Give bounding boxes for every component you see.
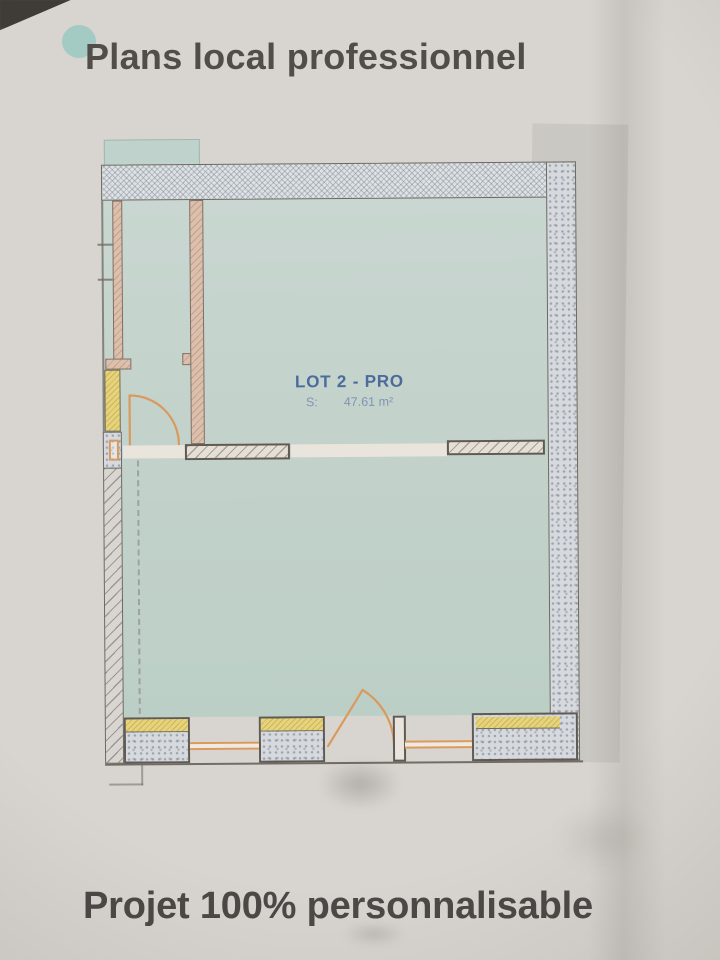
floor-plan: LOT 2 - PRO S: 47.61 m² bbox=[93, 118, 603, 802]
surface-value: 47.61 m² bbox=[344, 395, 393, 409]
bottom-window bbox=[190, 742, 260, 750]
interior-wall bbox=[189, 200, 205, 444]
facade-pier bbox=[259, 716, 325, 762]
left-wall-lower bbox=[103, 468, 124, 764]
room-name: LOT 2 - PRO bbox=[264, 371, 434, 392]
corner-wall-bottom-right bbox=[472, 712, 578, 761]
pier-masonry bbox=[261, 731, 323, 760]
door-frame-marker bbox=[109, 440, 119, 461]
top-wall bbox=[101, 161, 576, 200]
door-jamb-pier bbox=[393, 716, 406, 762]
left-partition-wall bbox=[112, 201, 123, 360]
page-title: Plans local professionnel bbox=[85, 36, 527, 78]
photo-smudge bbox=[555, 805, 650, 870]
bottom-window bbox=[405, 740, 473, 748]
facade-pier bbox=[124, 717, 190, 763]
partition-bar-right bbox=[447, 440, 545, 456]
footer-title: Projet 100% personnalisable bbox=[83, 885, 593, 928]
pier-masonry bbox=[126, 732, 188, 761]
exterior-slab bbox=[104, 139, 200, 166]
passage-opening bbox=[291, 443, 447, 457]
left-partition-cap bbox=[105, 359, 131, 370]
photographed-document-page: Plans local professionnel bbox=[0, 0, 720, 960]
interior-wall-notch bbox=[182, 353, 191, 365]
guide-extension bbox=[109, 783, 143, 785]
guide-extension bbox=[141, 763, 143, 785]
window-sill-band bbox=[476, 717, 560, 730]
right-wall bbox=[546, 161, 580, 760]
room-area: S: 47.61 m² bbox=[265, 394, 435, 409]
entrance-door-swing bbox=[325, 687, 399, 750]
room-label: LOT 2 - PRO S: 47.61 m² bbox=[264, 371, 434, 409]
window-sill-band bbox=[261, 718, 323, 731]
window-sill-band bbox=[126, 719, 188, 732]
left-window-band bbox=[104, 370, 120, 432]
partition-bar-left bbox=[185, 443, 290, 460]
interior-door-swing bbox=[127, 393, 187, 447]
surface-label: S: bbox=[306, 395, 318, 409]
